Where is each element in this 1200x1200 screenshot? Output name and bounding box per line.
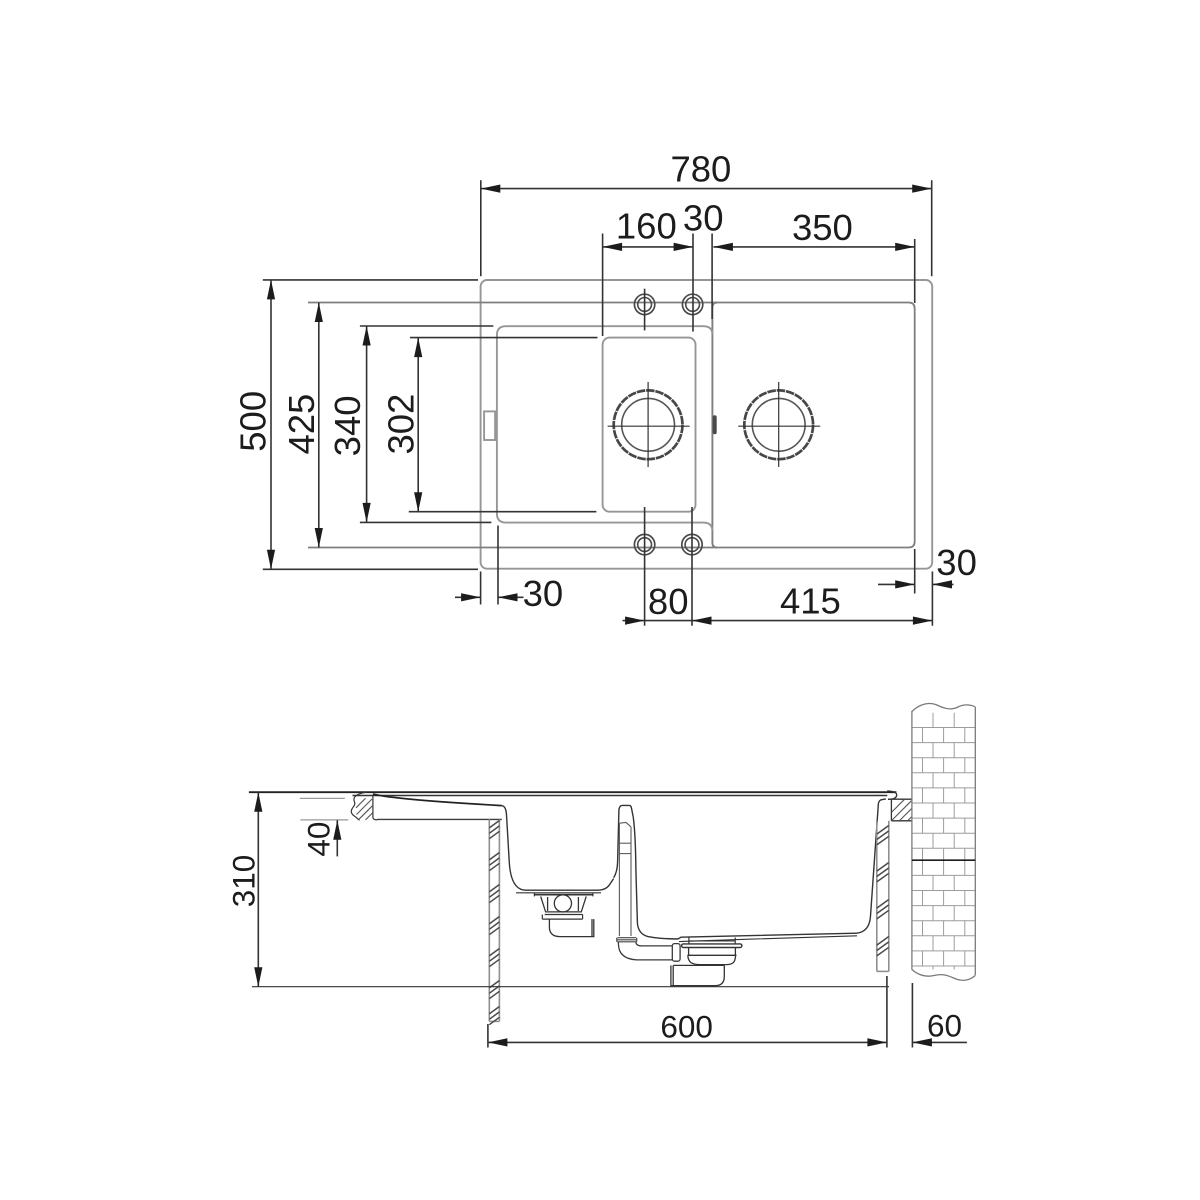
svg-text:160: 160 (616, 206, 677, 247)
svg-text:425: 425 (281, 394, 322, 455)
svg-text:340: 340 (327, 395, 368, 456)
svg-text:30: 30 (683, 197, 724, 238)
svg-text:30: 30 (936, 542, 977, 583)
svg-text:600: 600 (660, 1009, 713, 1045)
svg-text:415: 415 (780, 580, 841, 621)
svg-text:310: 310 (226, 855, 262, 908)
svg-text:80: 80 (648, 581, 689, 622)
svg-text:30: 30 (523, 573, 564, 614)
svg-text:350: 350 (792, 207, 853, 248)
svg-text:40: 40 (300, 822, 336, 857)
svg-text:500: 500 (233, 391, 274, 452)
svg-text:780: 780 (670, 149, 731, 190)
svg-text:302: 302 (381, 394, 422, 455)
svg-text:60: 60 (927, 1007, 962, 1043)
